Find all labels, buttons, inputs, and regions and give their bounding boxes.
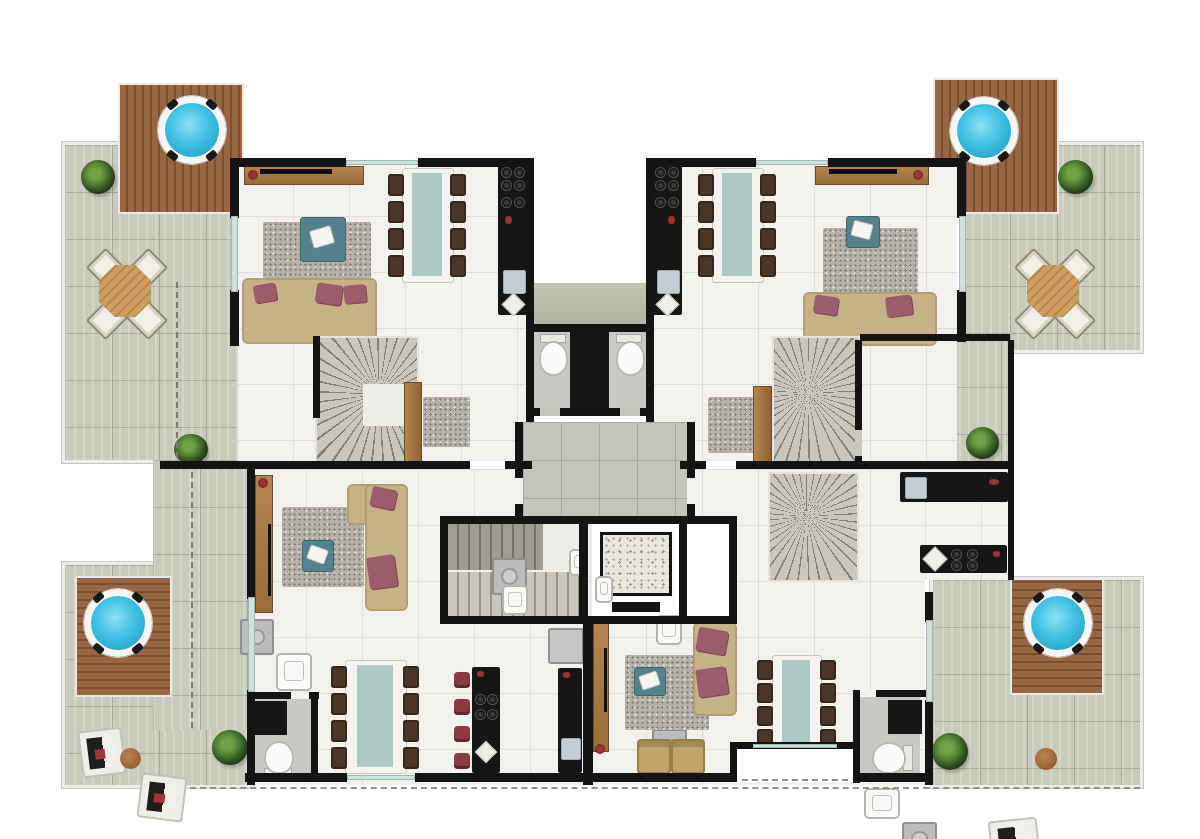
dining-chair [757,706,773,726]
potted-plant [932,733,968,770]
tv [604,648,607,712]
sofa-pillow [366,554,398,590]
cooktop-burner [968,561,977,570]
wall [311,692,318,782]
sun-lounger [988,817,1042,839]
wall [957,158,966,218]
sofa-pillow [253,282,278,304]
wall [515,422,523,524]
cooktop-burner [476,710,485,719]
cooktop-burner [488,695,497,704]
wall [160,461,470,469]
bar-stool [454,699,470,715]
wall [586,331,593,409]
bath-vanity [255,701,287,735]
dining-chair [450,255,466,277]
wall [230,290,239,346]
toilet [539,341,568,376]
sliding-door [959,216,966,292]
dining-chair [820,706,836,726]
cooktop-burner [968,550,977,559]
shaft-void [687,524,729,616]
wall [925,592,933,622]
bath-vanity [593,332,609,408]
cooktop-burner [952,550,961,559]
sliding-door [231,216,238,292]
wall [313,336,320,418]
cooktop-burner [488,710,497,719]
dining-chair [698,228,714,250]
armchair [671,739,705,774]
jacuzzi-top-left [158,96,226,164]
wood-door [404,382,422,468]
cooktop-burner [502,168,511,177]
wall [593,773,735,782]
dashed-line [191,472,193,728]
stair-landing [363,384,405,426]
sun-lounger [136,772,187,822]
cooktop-burner [669,198,678,207]
dining-chair [450,174,466,196]
bath-vanity [570,332,586,408]
sofa-pillow [695,666,729,698]
door-opening [687,478,695,504]
floor-plan [0,0,1200,839]
washer [902,822,937,839]
sliding-door [926,620,933,702]
sofa-pillow [315,282,344,305]
wall [687,422,695,524]
cooktop-burner [502,198,511,207]
small-rug [423,397,470,447]
cooktop-burner [952,561,961,570]
cooktop-burner [515,181,524,190]
wall [440,516,448,624]
winder-staircase [768,472,859,582]
cutting-board [503,270,526,294]
washer [240,619,274,655]
cooktop-burner [476,695,485,704]
winder-staircase [772,336,860,466]
dining-chair [820,683,836,703]
armchair [637,739,671,774]
round-side-table [120,748,141,769]
dining-chair [757,683,773,703]
wall [857,773,933,782]
potted-plant [966,427,999,459]
dining-chair [388,255,404,277]
dining-chair [760,201,776,223]
wall [253,692,319,699]
door-opening [860,690,876,697]
wall [440,516,737,524]
toilet [616,341,645,376]
wall [234,158,346,167]
dining-chair [331,693,347,715]
dining-chair [388,201,404,223]
dining-chair [403,666,419,688]
decor-red [505,215,512,225]
dining-chair [450,228,466,250]
wall [853,697,860,783]
cutting-board [905,477,927,499]
cooktop-burner [656,198,665,207]
dining-chair [698,174,714,196]
round-side-table [1035,748,1057,770]
sliding-door [248,597,255,692]
bath-vanity [888,700,922,734]
sofa-pillow [885,294,913,317]
flower-decor [595,744,605,754]
dining-chair [331,747,347,769]
cooktop-burner [515,168,524,177]
wall [247,469,255,599]
wall [828,158,964,167]
wall [230,158,239,218]
flower-decor [248,170,258,180]
window [346,160,418,165]
dining-chair [388,174,404,196]
dining-chair [331,666,347,688]
wall [583,621,593,785]
wall [415,773,590,782]
wall [247,690,255,785]
door-opening [620,408,640,416]
fridge [548,628,584,664]
window [756,160,828,165]
cooktop-burner [669,181,678,190]
decor-red [562,672,571,678]
wood-door [753,386,772,462]
dining-chair [760,228,776,250]
cooktop-burner [656,168,665,177]
cooktop-burner [515,198,524,207]
laundry-sink [276,653,312,691]
dining-chair [388,228,404,250]
sofa-pillow [343,284,366,304]
marble-lobby-strip [534,283,646,324]
wall [526,283,534,422]
entry-recess [736,749,855,782]
cooktop-burner [656,181,665,190]
wall [860,334,1010,341]
wall [730,742,737,782]
laundry-sink [864,788,900,819]
kitchen-sink [502,585,528,615]
dining-chair [820,660,836,680]
potted-plant [212,730,248,765]
dining-runner [782,660,810,744]
dining-chair [698,255,714,277]
wall [679,516,687,624]
cooktop-burner [669,168,678,177]
bar-stool [454,753,470,769]
decor-red [988,479,1000,485]
dining-chair [450,201,466,223]
hall-landing [523,422,687,516]
door-opening [291,692,309,699]
flower-decor [258,478,268,488]
dashed-line [742,779,848,781]
dining-runner [357,665,393,767]
bar-stool [454,726,470,742]
bath-sink [595,576,613,603]
dining-chair [760,174,776,196]
decor-red [992,551,1001,557]
cooktop-burner [502,181,511,190]
cutting-board [657,270,680,294]
jacuzzi-bottom-left [84,589,152,657]
property-dashed-line [190,787,1140,789]
wall [245,773,347,782]
flower-decor [913,170,923,180]
wall [579,516,588,624]
potted-plant [174,434,208,464]
tv [268,524,271,596]
sofa-pillow [695,627,729,656]
elevator-door [612,602,660,612]
toilet [872,742,906,774]
tv [260,169,332,174]
door-opening [855,430,862,456]
wall [1008,340,1014,580]
dashed-line [176,282,178,458]
decor-red [476,671,485,677]
wall [418,158,534,167]
door-opening [540,408,560,416]
decor-red [668,215,675,225]
dining-chair [403,693,419,715]
sun-lounger [77,726,126,778]
dining-chair [331,720,347,742]
door-opening [515,478,523,504]
octagonal-table-top-right [1027,265,1079,317]
wall [736,461,1014,469]
small-rug [708,397,755,453]
dining-chair [760,255,776,277]
jacuzzi-top-right [950,97,1018,165]
dining-chair [403,747,419,769]
window [347,775,415,780]
wall [646,283,654,422]
potted-plant [81,160,115,194]
wall [648,158,756,167]
wall [729,516,737,624]
cutting-board [561,738,581,760]
dining-chair [757,660,773,680]
bar-stool [454,672,470,688]
toilet [264,741,294,774]
potted-plant [1058,160,1093,194]
window [753,744,837,748]
jacuzzi-bottom-right [1024,589,1092,657]
sofa-pillow [813,294,840,316]
dining-runner [412,173,442,276]
tv [829,169,897,174]
dining-chair [698,201,714,223]
dining-runner [722,173,752,276]
dining-chair [403,720,419,742]
